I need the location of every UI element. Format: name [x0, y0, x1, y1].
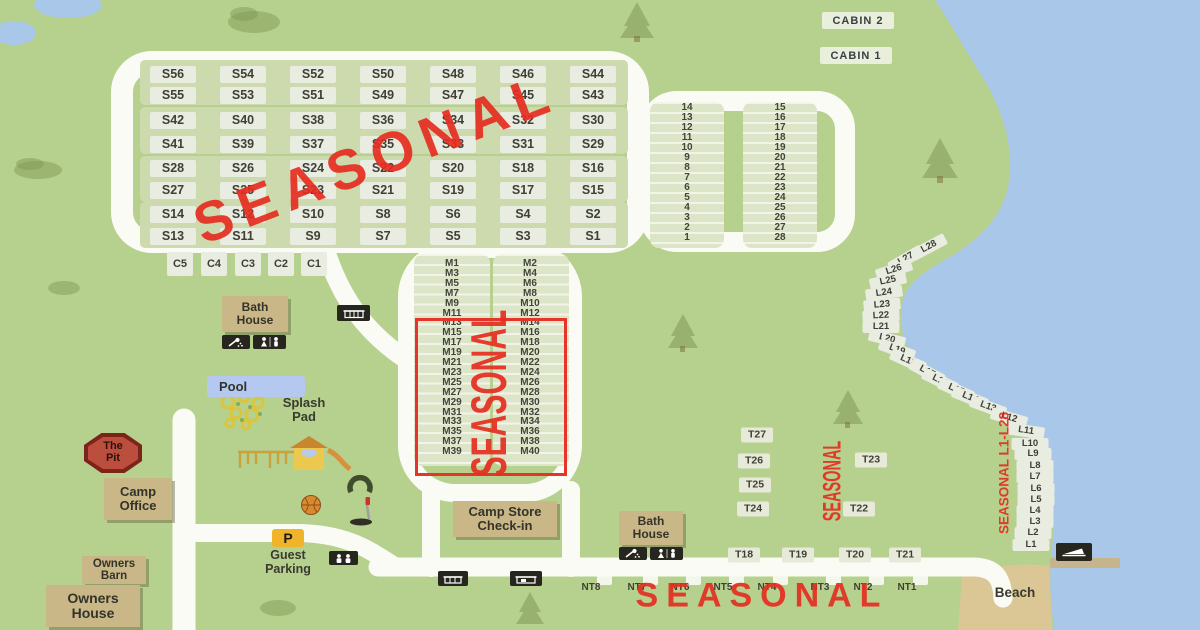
- splash-pad-label: Splash Pad: [268, 396, 340, 425]
- site-c1: C1: [301, 252, 327, 276]
- site-s30: S30: [570, 112, 616, 129]
- bath-house-2-label: Bath House: [619, 515, 683, 541]
- beach-label: Beach: [975, 586, 1055, 601]
- site-s5: S5: [430, 228, 476, 245]
- site-s17: S17: [500, 182, 546, 199]
- site-s56: S56: [150, 66, 196, 83]
- site-s48: S48: [430, 66, 476, 83]
- restroom-icon: [650, 547, 683, 560]
- site-c3: C3: [235, 252, 261, 276]
- bath-house-building: Bath House: [222, 296, 288, 332]
- site-s18: S18: [500, 160, 546, 177]
- site-s16: S16: [570, 160, 616, 177]
- pond: [0, 21, 36, 45]
- torch-icon: [350, 497, 372, 526]
- playground-icon: [238, 436, 350, 470]
- horseshoe-icon: [350, 478, 370, 492]
- seasonal-overlay-nt: SEASONAL: [636, 577, 889, 616]
- site-s50: S50: [360, 66, 406, 83]
- camp-store-building: Camp Store Check-in: [453, 501, 557, 537]
- site-s19: S19: [430, 182, 476, 199]
- site-t22: T22: [843, 502, 875, 517]
- site-t20: T20: [839, 548, 871, 563]
- site-t27: T27: [741, 428, 773, 443]
- camp-office-building: Camp Office: [104, 478, 172, 520]
- guest-parking-label: Guest Parking: [244, 549, 332, 577]
- site-s4: S4: [500, 206, 546, 223]
- shower-icon: [222, 335, 250, 349]
- pond: [34, 0, 102, 18]
- dumpster-icon: [438, 571, 468, 586]
- owners-barn-building: Owners Barn: [82, 556, 146, 584]
- site-t23: T23: [855, 453, 887, 468]
- restroom-icon: [253, 335, 286, 349]
- site-s41: S41: [150, 136, 196, 153]
- site-1: 1: [667, 232, 707, 243]
- site-t24: T24: [737, 502, 769, 517]
- site-t25: T25: [739, 478, 771, 493]
- site-c4: C4: [201, 252, 227, 276]
- site-s6: S6: [430, 206, 476, 223]
- site-s38: S38: [290, 112, 336, 129]
- site-s49: S49: [360, 87, 406, 104]
- owners-barn-label: Owners Barn: [90, 558, 138, 583]
- site-s15: S15: [570, 182, 616, 199]
- site-c2: C2: [268, 252, 294, 276]
- bath-house-label: Bath House: [222, 301, 288, 327]
- site-c5: C5: [167, 252, 193, 276]
- site-nt8: NT8: [574, 582, 608, 593]
- site-t19: T19: [782, 548, 814, 563]
- basketball-icon: [302, 496, 321, 515]
- campground-map: Bath House Pool Splash Pad The Pit Camp …: [0, 0, 1200, 630]
- site-s7: S7: [360, 228, 406, 245]
- site-nt1: NT1: [890, 582, 924, 593]
- seasonal-overlay-m: SEASONAL: [460, 310, 518, 477]
- site-s42: S42: [150, 112, 196, 129]
- pool-area: Pool: [207, 376, 305, 397]
- site-s28: S28: [150, 160, 196, 177]
- site-s53: S53: [220, 87, 266, 104]
- site-s3: S3: [500, 228, 546, 245]
- shower-icon: [619, 547, 647, 560]
- site-s43: S43: [570, 87, 616, 104]
- dumpster-icon: [337, 305, 370, 321]
- pool-label: Pool: [219, 379, 247, 394]
- guest-parking-sign: P: [272, 529, 304, 547]
- splash-pad-icon: [222, 392, 263, 429]
- site-s29: S29: [570, 136, 616, 153]
- site-s55: S55: [150, 87, 196, 104]
- site-l1: L1: [1013, 539, 1050, 551]
- camp-office-label: Camp Office: [113, 485, 163, 513]
- site-s13: S13: [150, 228, 196, 245]
- site-l9: L9: [1015, 448, 1052, 460]
- site-s39: S39: [220, 136, 266, 153]
- site-s1: S1: [570, 228, 616, 245]
- camp-store-label: Camp Store Check-in: [465, 505, 545, 533]
- boat-ramp-icon: [1056, 543, 1092, 561]
- site-s8: S8: [360, 206, 406, 223]
- bath-house-2-building: Bath House: [619, 511, 683, 545]
- site-t26: T26: [738, 454, 770, 469]
- guest-parking-amenity-icon: [329, 551, 358, 565]
- site-s9: S9: [290, 228, 336, 245]
- site-t21: T21: [889, 548, 921, 563]
- the-pit-label: The Pit: [98, 441, 128, 464]
- site-t18: T18: [728, 548, 760, 563]
- dumpster-icon: [510, 571, 542, 586]
- site-s52: S52: [290, 66, 336, 83]
- owners-house-label: Owners House: [63, 591, 123, 621]
- site-28: 28: [760, 232, 800, 243]
- site-s51: S51: [290, 87, 336, 104]
- seasonal-overlay-t: SEASONAL: [819, 441, 848, 522]
- cabin-1-label: CABIN 1: [820, 50, 892, 62]
- site-s2: S2: [570, 206, 616, 223]
- site-l7: L7: [1017, 471, 1054, 483]
- site-l2: L2: [1015, 527, 1052, 539]
- seasonal-overlay-l: SEASONAL L1-L28: [997, 412, 1012, 534]
- site-s54: S54: [220, 66, 266, 83]
- owners-house-building: Owners House: [46, 585, 140, 627]
- cabin-2-label: CABIN 2: [822, 15, 894, 27]
- site-s44: S44: [570, 66, 616, 83]
- site-s40: S40: [220, 112, 266, 129]
